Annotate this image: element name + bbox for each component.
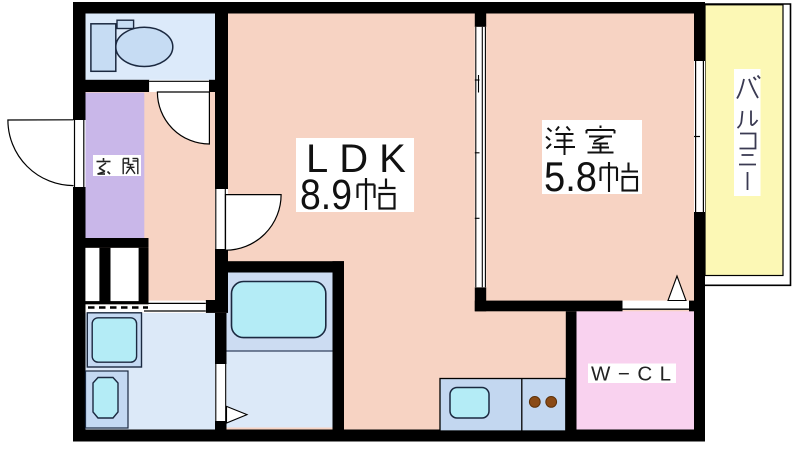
- svg-text:W−CL: W−CL: [591, 363, 679, 386]
- svg-text:8.9: 8.9: [300, 171, 352, 219]
- svg-text:5.8: 5.8: [544, 153, 597, 200]
